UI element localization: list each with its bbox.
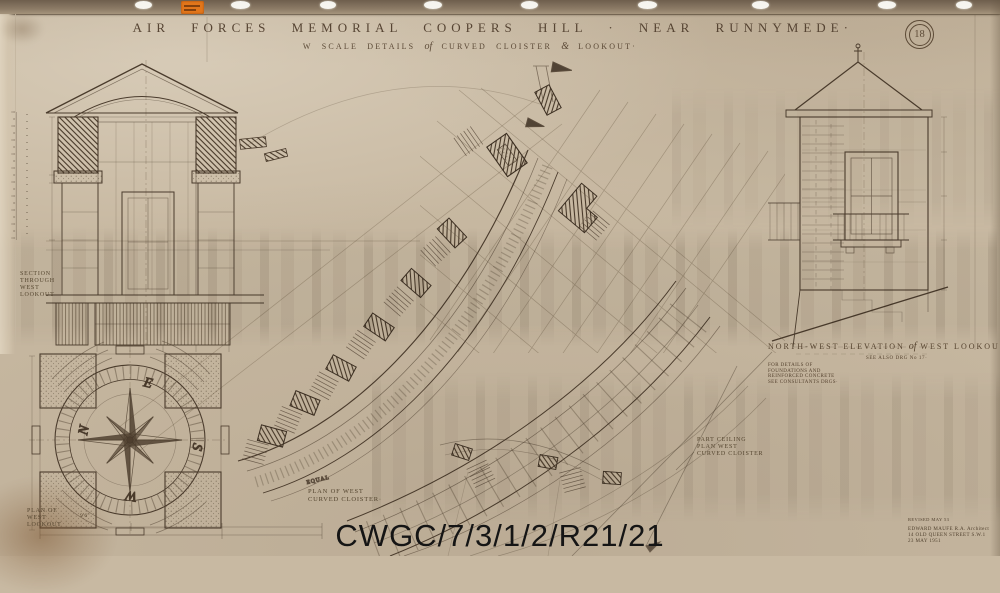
- sheet-number-badge: 18: [905, 20, 934, 49]
- elevation-title-prefix: NORTH-WEST ELEVATION: [768, 342, 905, 351]
- section-label-line: LOOKOUT: [20, 292, 55, 299]
- compass-letter-south: S: [188, 442, 204, 452]
- subtitle-ampersand: &: [561, 41, 569, 52]
- section-label: SECTION THROUGH WEST LOOKOUT: [20, 271, 55, 299]
- elevation-west-lookout: [768, 44, 948, 354]
- top-left-stain: [0, 14, 44, 44]
- elevation-note-line: REINFORCED CONCRETE: [768, 374, 838, 380]
- clip-glint: [135, 1, 152, 9]
- elevation-reference: SEE ALSO DRG No 17·: [866, 356, 927, 361]
- plan-cloister-label-line: CURVED CLOISTER·: [308, 496, 382, 504]
- section-label-line: SECTION: [20, 271, 55, 278]
- clip-glint: [956, 1, 972, 9]
- subtitle-mid: CURVED CLOISTER: [442, 42, 552, 51]
- ceiling-plan-label-line: PLAN WEST: [697, 444, 763, 451]
- sheet-border-lines: [0, 15, 1000, 351]
- clip-glint: [320, 1, 336, 9]
- compass-letter-north: N: [76, 424, 93, 438]
- elevation-note-line: SEE CONSULTANTS DRGS·: [768, 380, 838, 386]
- clip-glint: [878, 1, 896, 9]
- section-label-line: WEST: [20, 285, 55, 292]
- clip-glint: [752, 1, 769, 9]
- sheet-right-edge: [990, 0, 1000, 556]
- subtitle-prefix: W SCALE DETAILS: [303, 42, 415, 51]
- ceiling-plan-label: PART CEILING PLAN WEST CURVED CLOISTER: [697, 437, 763, 458]
- plan-lookout-label-line: PLAN OF: [27, 508, 62, 515]
- clip-glint: [638, 1, 657, 9]
- elevation-title-rest: WEST LOOKOUT: [920, 342, 1000, 351]
- construction-lines: [36, 52, 864, 534]
- elevation-title: NORTH-WEST ELEVATION of WEST LOOKOUT: [768, 341, 1000, 352]
- section-west-lookout: [46, 64, 288, 352]
- plan-cloister-label-line: PLAN OF WEST: [308, 488, 382, 496]
- drawing-linework: E S W N: [0, 0, 1000, 556]
- ceiling-plan-label-line: CURVED CLOISTER: [697, 451, 763, 458]
- equal-annotation: EQUAL: [306, 475, 330, 486]
- sheet-title: AIR FORCES MEMORIAL COOPERS HILL · NEAR …: [133, 20, 853, 36]
- elevation-title-of: of: [909, 341, 917, 352]
- subtitle-of: of: [425, 41, 433, 52]
- section-label-line: THROUGH: [20, 278, 55, 285]
- scanned-drawing-sheet: { "sheet": { "number": "18", "title": "A…: [0, 0, 1000, 556]
- plan-cloister-label: PLAN OF WEST CURVED CLOISTER·: [308, 488, 382, 504]
- sheet-subtitle: W SCALE DETAILS of CURVED CLOISTER & LOO…: [303, 41, 637, 52]
- ceiling-plan-label-line: PART CEILING: [697, 437, 763, 444]
- compass-letter-east: E: [141, 375, 154, 392]
- subtitle-end: LOOKOUT·: [578, 42, 637, 51]
- elevation-note: FOR DETAILS OF FOUNDATIONS AND REINFORCE…: [768, 363, 838, 385]
- orange-sticker: [181, 1, 204, 14]
- sheet-number: 18: [914, 29, 925, 40]
- clip-glint: [424, 1, 442, 9]
- clip-glint: [521, 1, 538, 9]
- torn-left-edge: [0, 14, 16, 354]
- compass-letter-west: W: [123, 487, 138, 504]
- plan-curved-cloister: EQUAL: [238, 62, 621, 556]
- archive-watermark: CWGC/7/3/1/2/R21/21: [0, 518, 1000, 554]
- clip-glint: [231, 1, 250, 9]
